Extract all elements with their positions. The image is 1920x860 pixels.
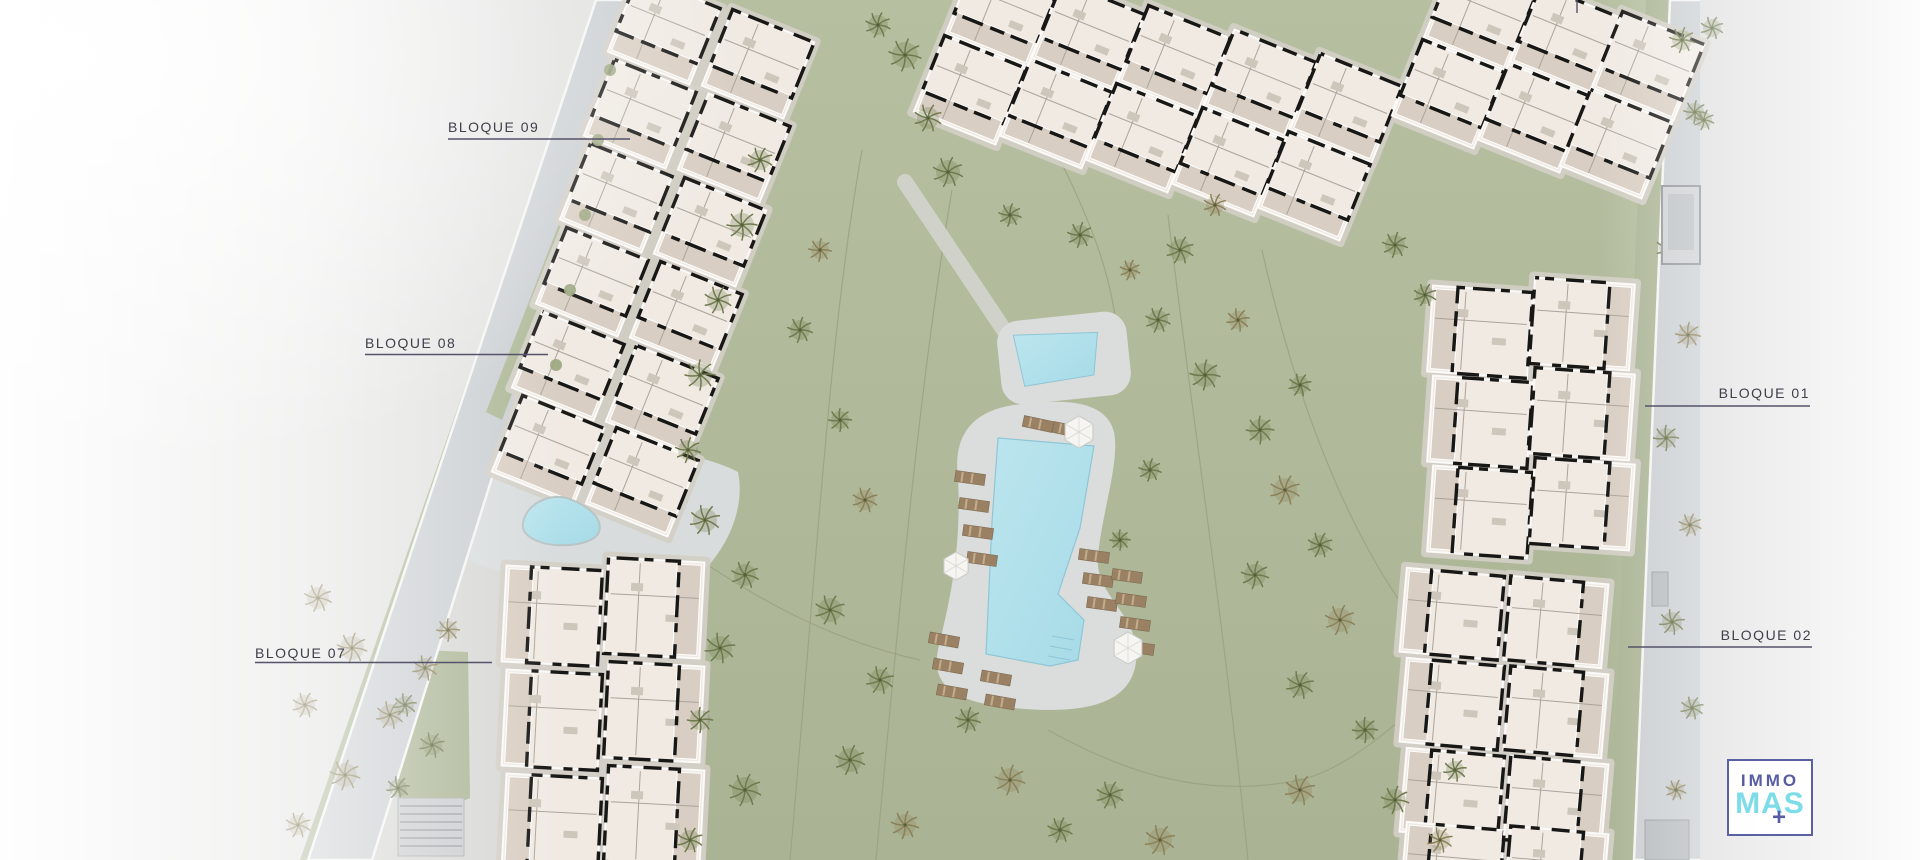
site-plan: BLOQUE 09 BLOQUE 08 BLOQUE 07 BLOQUE 01 … [0, 0, 1920, 860]
label-bloque-09[interactable]: BLOQUE 09 [448, 119, 539, 135]
label-bloque-08[interactable]: BLOQUE 08 [365, 335, 456, 351]
ramp-structure [1662, 186, 1700, 264]
utility-box [1652, 572, 1668, 606]
utility-pad [1645, 820, 1689, 860]
label-bloque-01[interactable]: BLOQUE 01 [1640, 385, 1810, 401]
label-bloque-02[interactable]: BLOQUE 02 [1640, 627, 1812, 643]
pavement-east [1700, 0, 1920, 860]
stairs [398, 798, 464, 856]
immomas-logo: IMMO MAS + [1727, 759, 1813, 836]
logo-mas-text: MAS [1729, 789, 1811, 819]
label-bloque-07[interactable]: BLOQUE 07 [255, 645, 346, 661]
site-plan-canvas [0, 0, 1920, 860]
logo-plus-icon: + [1772, 806, 1786, 830]
kids-pool [995, 309, 1133, 406]
